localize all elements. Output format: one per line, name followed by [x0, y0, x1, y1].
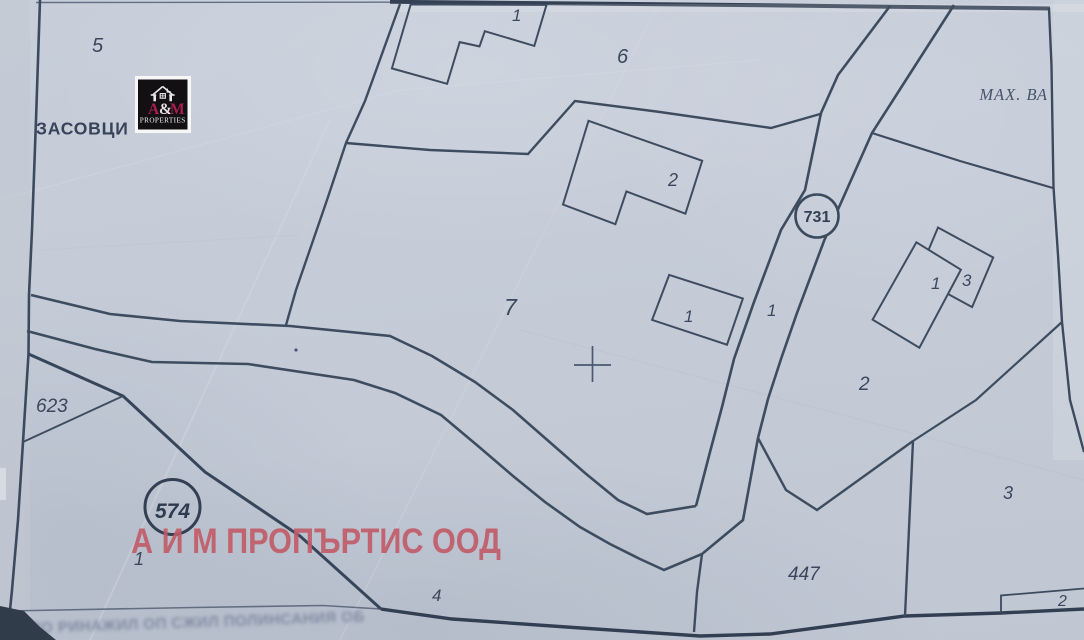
svg-text:ПО РИНАЖИЛ ОП СЖИЛ ПОЛИНСАНИЯ: ПО РИНАЖИЛ ОП СЖИЛ ПОЛИНСАНИЯ ОБ — [30, 608, 365, 637]
svg-text:574: 574 — [155, 500, 190, 523]
svg-text:4: 4 — [432, 586, 441, 605]
svg-text:3: 3 — [962, 271, 972, 290]
svg-text:5: 5 — [92, 35, 104, 57]
svg-text:1: 1 — [684, 307, 693, 326]
svg-text:PROPERTIES: PROPERTIES — [140, 117, 186, 125]
svg-text:6: 6 — [617, 46, 629, 68]
svg-text:623: 623 — [36, 396, 68, 417]
svg-text:447: 447 — [788, 564, 821, 585]
svg-text:1: 1 — [767, 301, 776, 320]
svg-text:2: 2 — [1057, 593, 1067, 610]
svg-text:2: 2 — [667, 170, 678, 190]
svg-text:МАХ. ВА: МАХ. ВА — [978, 85, 1048, 104]
svg-text:2: 2 — [858, 374, 870, 395]
svg-text:3: 3 — [1003, 483, 1013, 503]
svg-text:1: 1 — [512, 6, 521, 25]
svg-text:7: 7 — [504, 294, 518, 320]
svg-text:M: M — [170, 101, 185, 118]
svg-text:1: 1 — [931, 274, 940, 293]
svg-text:731: 731 — [804, 209, 831, 226]
svg-text:ЗАСОВЦИ: ЗАСОВЦИ — [36, 119, 129, 139]
svg-text:А И М ПРОПЪРТИС ООД: А И М ПРОПЪРТИС ООД — [131, 522, 501, 561]
